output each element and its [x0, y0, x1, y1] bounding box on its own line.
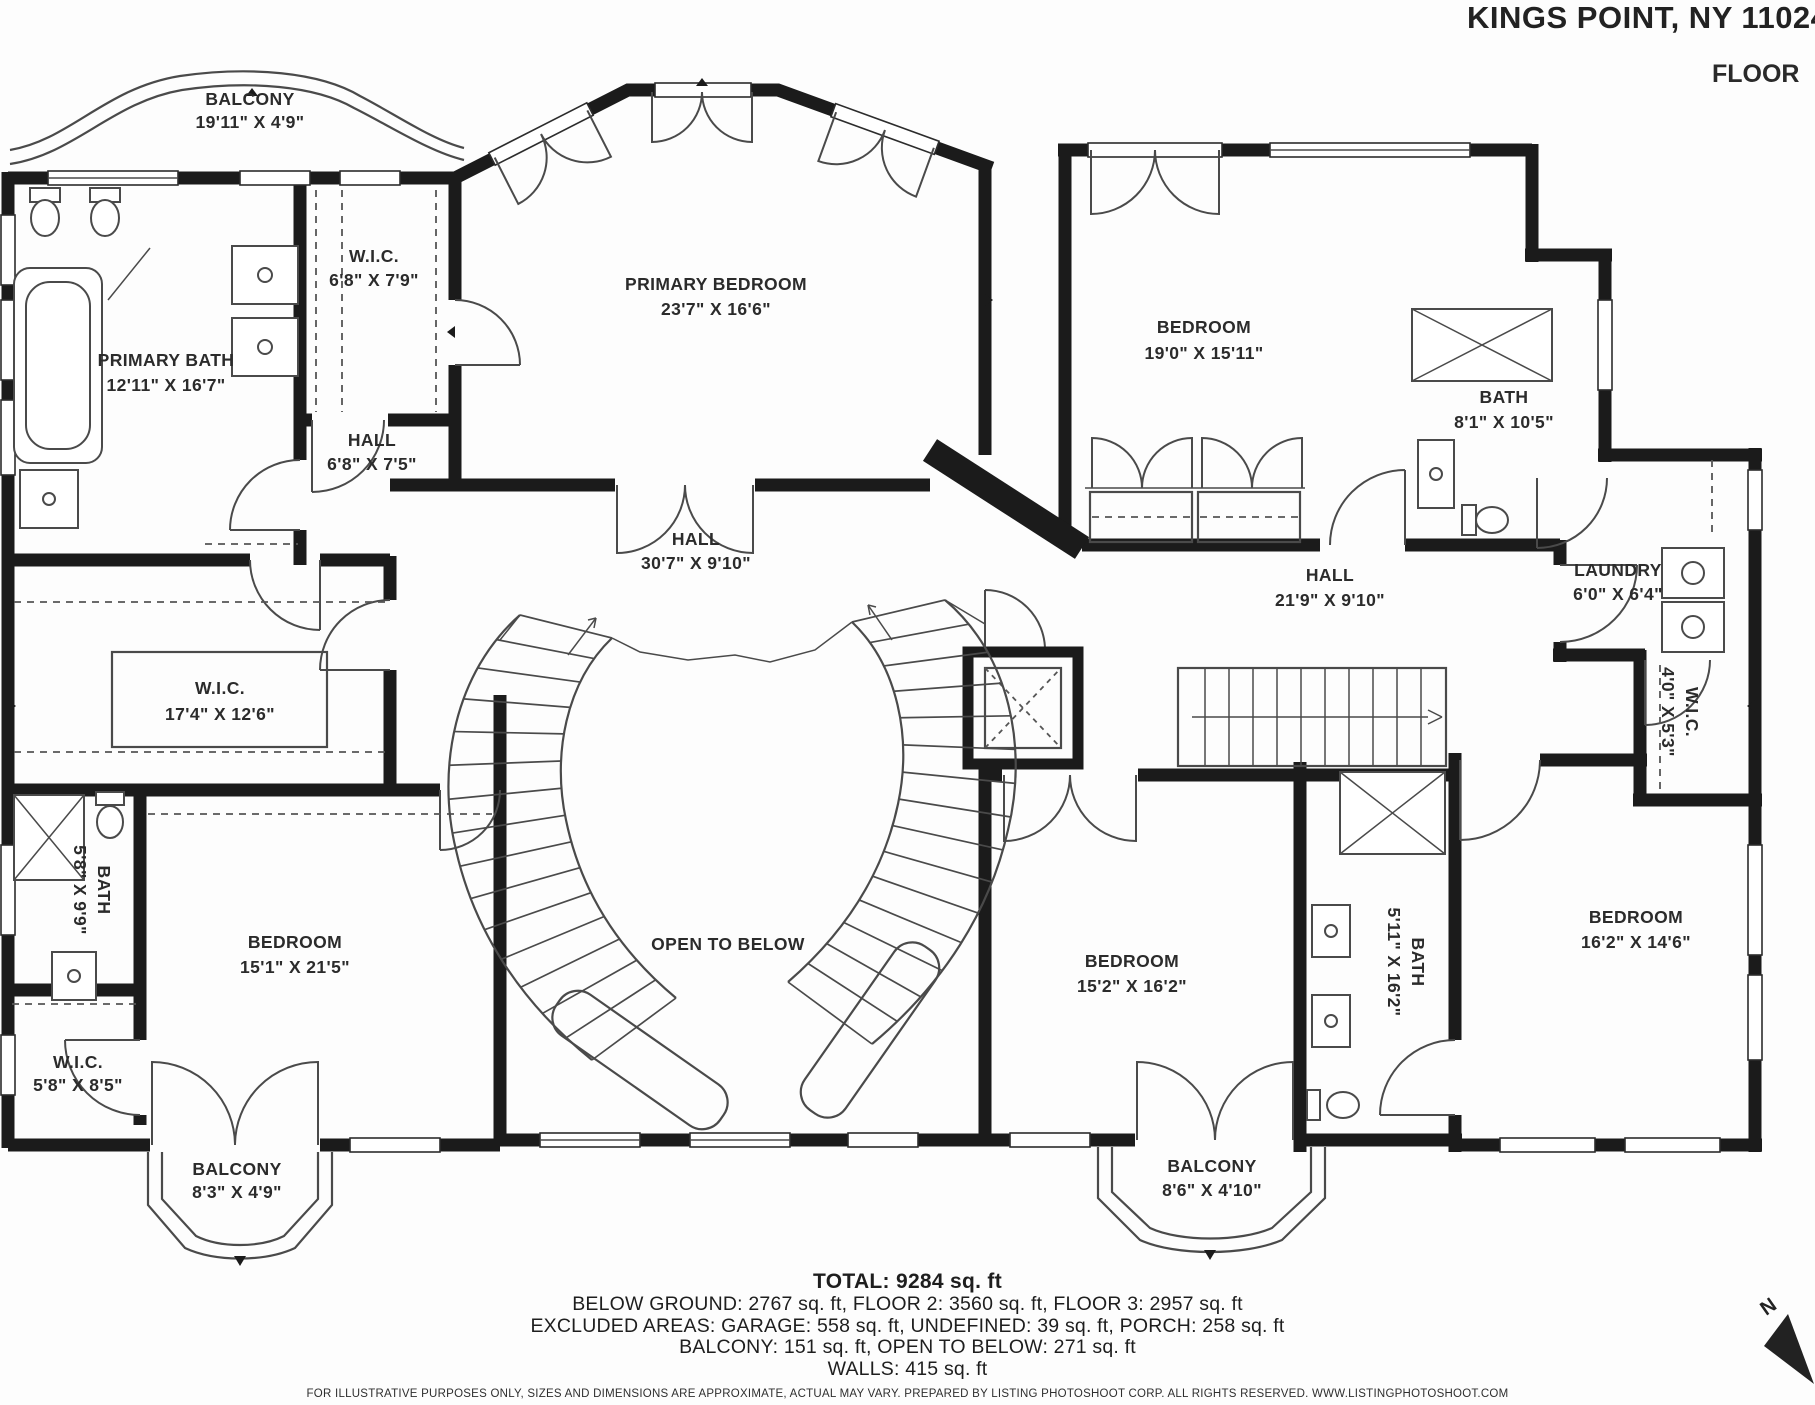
svg-text:6'8" X 7'5": 6'8" X 7'5"	[327, 454, 417, 474]
summary-total: TOTAL: 9284 sq. ft	[0, 1270, 1815, 1294]
toilet-icon	[96, 792, 124, 805]
room-label-wic-left: W.I.C.	[195, 678, 245, 698]
room-label-wic-bottom-left: W.I.C.	[53, 1052, 103, 1072]
balcony-outlines	[10, 71, 1325, 1258]
toilet-icon	[1307, 1090, 1320, 1120]
wic-left-label-box	[112, 652, 327, 747]
room-label-balcony-bottom-left: BALCONY	[192, 1159, 281, 1179]
svg-text:6'0" X 6'4": 6'0" X 6'4"	[1573, 584, 1663, 604]
room-label-laundry: LAUNDRY	[1574, 560, 1662, 580]
windows	[1, 83, 1762, 1152]
room-label-hall-center: HALL	[672, 529, 720, 549]
svg-text:BATH: BATH	[1408, 938, 1428, 987]
bath-fixtures	[14, 188, 1724, 1120]
disclaimer-text: FOR ILLUSTRATIVE PURPOSES ONLY, SIZES AN…	[0, 1388, 1815, 1400]
svg-text:4'0" X 5'3": 4'0" X 5'3"	[1658, 667, 1678, 757]
summary-line-balcony: BALCONY: 151 sq. ft, OPEN TO BELOW: 271 …	[0, 1337, 1815, 1359]
svg-text:8'6" X 4'10": 8'6" X 4'10"	[1162, 1180, 1262, 1200]
svg-text:BATH: BATH	[94, 866, 114, 915]
room-label-wic-top: W.I.C.	[349, 246, 399, 266]
summary-line-walls: WALLS: 415 sq. ft	[0, 1359, 1815, 1381]
room-label-primary-bedroom: PRIMARY BEDROOM	[625, 274, 807, 294]
svg-text:15'2" X 16'2": 15'2" X 16'2"	[1077, 976, 1187, 996]
room-label-wic-right: W.I.C. 4'0" X 5'3"	[1658, 667, 1702, 757]
svg-text:8'3" X 4'9": 8'3" X 4'9"	[192, 1182, 282, 1202]
room-label-bath-top-right: BATH	[1480, 387, 1529, 407]
area-summary: TOTAL: 9284 sq. ft BELOW GROUND: 2767 sq…	[0, 1270, 1815, 1380]
svg-text:19'11" X 4'9": 19'11" X 4'9"	[196, 112, 305, 132]
toilet-icon	[1462, 505, 1476, 535]
room-label-bedroom-left: BEDROOM	[248, 932, 342, 952]
svg-text:21'9" X 9'10": 21'9" X 9'10"	[1275, 590, 1385, 610]
svg-text:16'2" X 14'6": 16'2" X 14'6"	[1581, 932, 1691, 952]
svg-text:23'7" X 16'6": 23'7" X 16'6"	[661, 299, 771, 319]
svg-text:15'1" X 21'5": 15'1" X 21'5"	[240, 957, 350, 977]
room-label-balcony-top: BALCONY	[205, 89, 294, 109]
svg-text:19'0" X 15'11": 19'0" X 15'11"	[1144, 343, 1263, 363]
svg-text:6'8" X 7'9": 6'8" X 7'9"	[329, 270, 419, 290]
room-label-bedroom-bottom-center: BEDROOM	[1085, 951, 1179, 971]
straight-stairs	[1178, 668, 1446, 766]
room-label-primary-bath: PRIMARY BATH	[98, 350, 235, 370]
floor-plan-drawing: BALCONY 19'11" X 4'9" W.I.C. 6'8" X 7'9"…	[0, 0, 1815, 1405]
svg-text:W.I.C.: W.I.C.	[1682, 687, 1702, 737]
elevator-shaft	[968, 652, 1078, 764]
room-label-bedroom-top-right: BEDROOM	[1157, 317, 1251, 337]
svg-text:5'8" X 8'5": 5'8" X 8'5"	[33, 1075, 123, 1095]
shower-icon	[1340, 772, 1445, 854]
linen-closet-icon	[1412, 309, 1552, 381]
svg-text:5'8" X 9'9": 5'8" X 9'9"	[70, 845, 90, 935]
room-label-bath-left: BATH 5'8" X 9'9"	[70, 845, 114, 935]
room-label-balcony-bottom-right: BALCONY	[1167, 1156, 1256, 1176]
curved-stairs	[448, 600, 1015, 1138]
svg-text:17'4" X 12'6": 17'4" X 12'6"	[165, 704, 275, 724]
svg-text:8'1" X 10'5": 8'1" X 10'5"	[1454, 412, 1554, 432]
summary-line-floors: BELOW GROUND: 2767 sq. ft, FLOOR 2: 3560…	[0, 1294, 1815, 1316]
room-label-open-to-below: OPEN TO BELOW	[651, 934, 805, 954]
svg-text:30'7" X 9'10": 30'7" X 9'10"	[641, 553, 751, 573]
summary-line-excluded: EXCLUDED AREAS: GARAGE: 558 sq. ft, UNDE…	[0, 1316, 1815, 1338]
room-label-hall-small: HALL	[348, 430, 396, 450]
room-label-bath-bottom: BATH 5'11" X 16'2"	[1384, 908, 1428, 1017]
room-label-hall-right: HALL	[1306, 565, 1354, 585]
room-label-bedroom-right: BEDROOM	[1589, 907, 1683, 927]
floor-plan-page: KINGS POINT, NY 11024 FLOOR	[0, 0, 1815, 1405]
svg-text:5'11" X 16'2": 5'11" X 16'2"	[1384, 908, 1404, 1017]
svg-text:12'11" X 16'7": 12'11" X 16'7"	[106, 375, 225, 395]
